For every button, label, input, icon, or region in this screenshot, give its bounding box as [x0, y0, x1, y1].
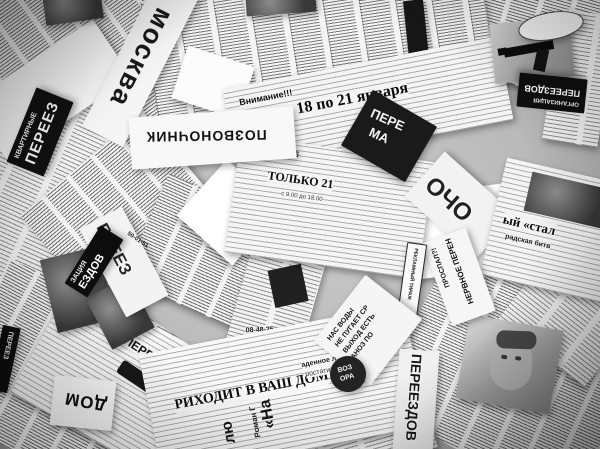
- photo-shape: [501, 354, 508, 359]
- photo-shape: [496, 330, 537, 349]
- scrap-org-pereezdov-badge: ОРГАНИЗАЦИЯПЕРЕЕЗДОВ: [516, 73, 587, 114]
- scrap-text: с 9.00 до 18.00: [281, 191, 323, 203]
- scrap-pereezdov-vertical: ПЕРЕЕЗДОВ: [392, 349, 439, 449]
- scrap-face-photo: [455, 314, 563, 414]
- scrap-text: НЕРВНОЕ ПЕРЕН: [444, 237, 476, 305]
- scrap-dom: ДОМ: [50, 375, 117, 431]
- scrap-text: ОРА: [339, 373, 355, 384]
- scrap-text: МА: [367, 125, 391, 146]
- scrap-text: ПЕРЕЕЗДОВ: [524, 83, 581, 98]
- scrap-text: РЕКЛАМНЫЙ ТИРАЖ: [405, 248, 417, 300]
- scrap-text: лю: [219, 420, 239, 445]
- newspaper-collage-photo: москваКВАРТИРНЫЕПЕРЕЕЗЗАЦИЯЕЗДОВЕРЕЕЗ50-…: [0, 0, 600, 449]
- photo-shape: [268, 264, 309, 308]
- scrap-text: ПОЗВОНОЧНИК: [146, 127, 267, 144]
- scrap-text: ТОЛЬКО 21: [267, 169, 334, 191]
- scrap-text: ДОМ: [63, 389, 108, 414]
- scrap-text: ПЕРЕЕЗДОВ: [403, 353, 424, 441]
- scrap-text: «На: [258, 398, 280, 430]
- photo-shape: [515, 356, 522, 361]
- scrap-text: ПЕРЕЕЗ: [1, 331, 14, 360]
